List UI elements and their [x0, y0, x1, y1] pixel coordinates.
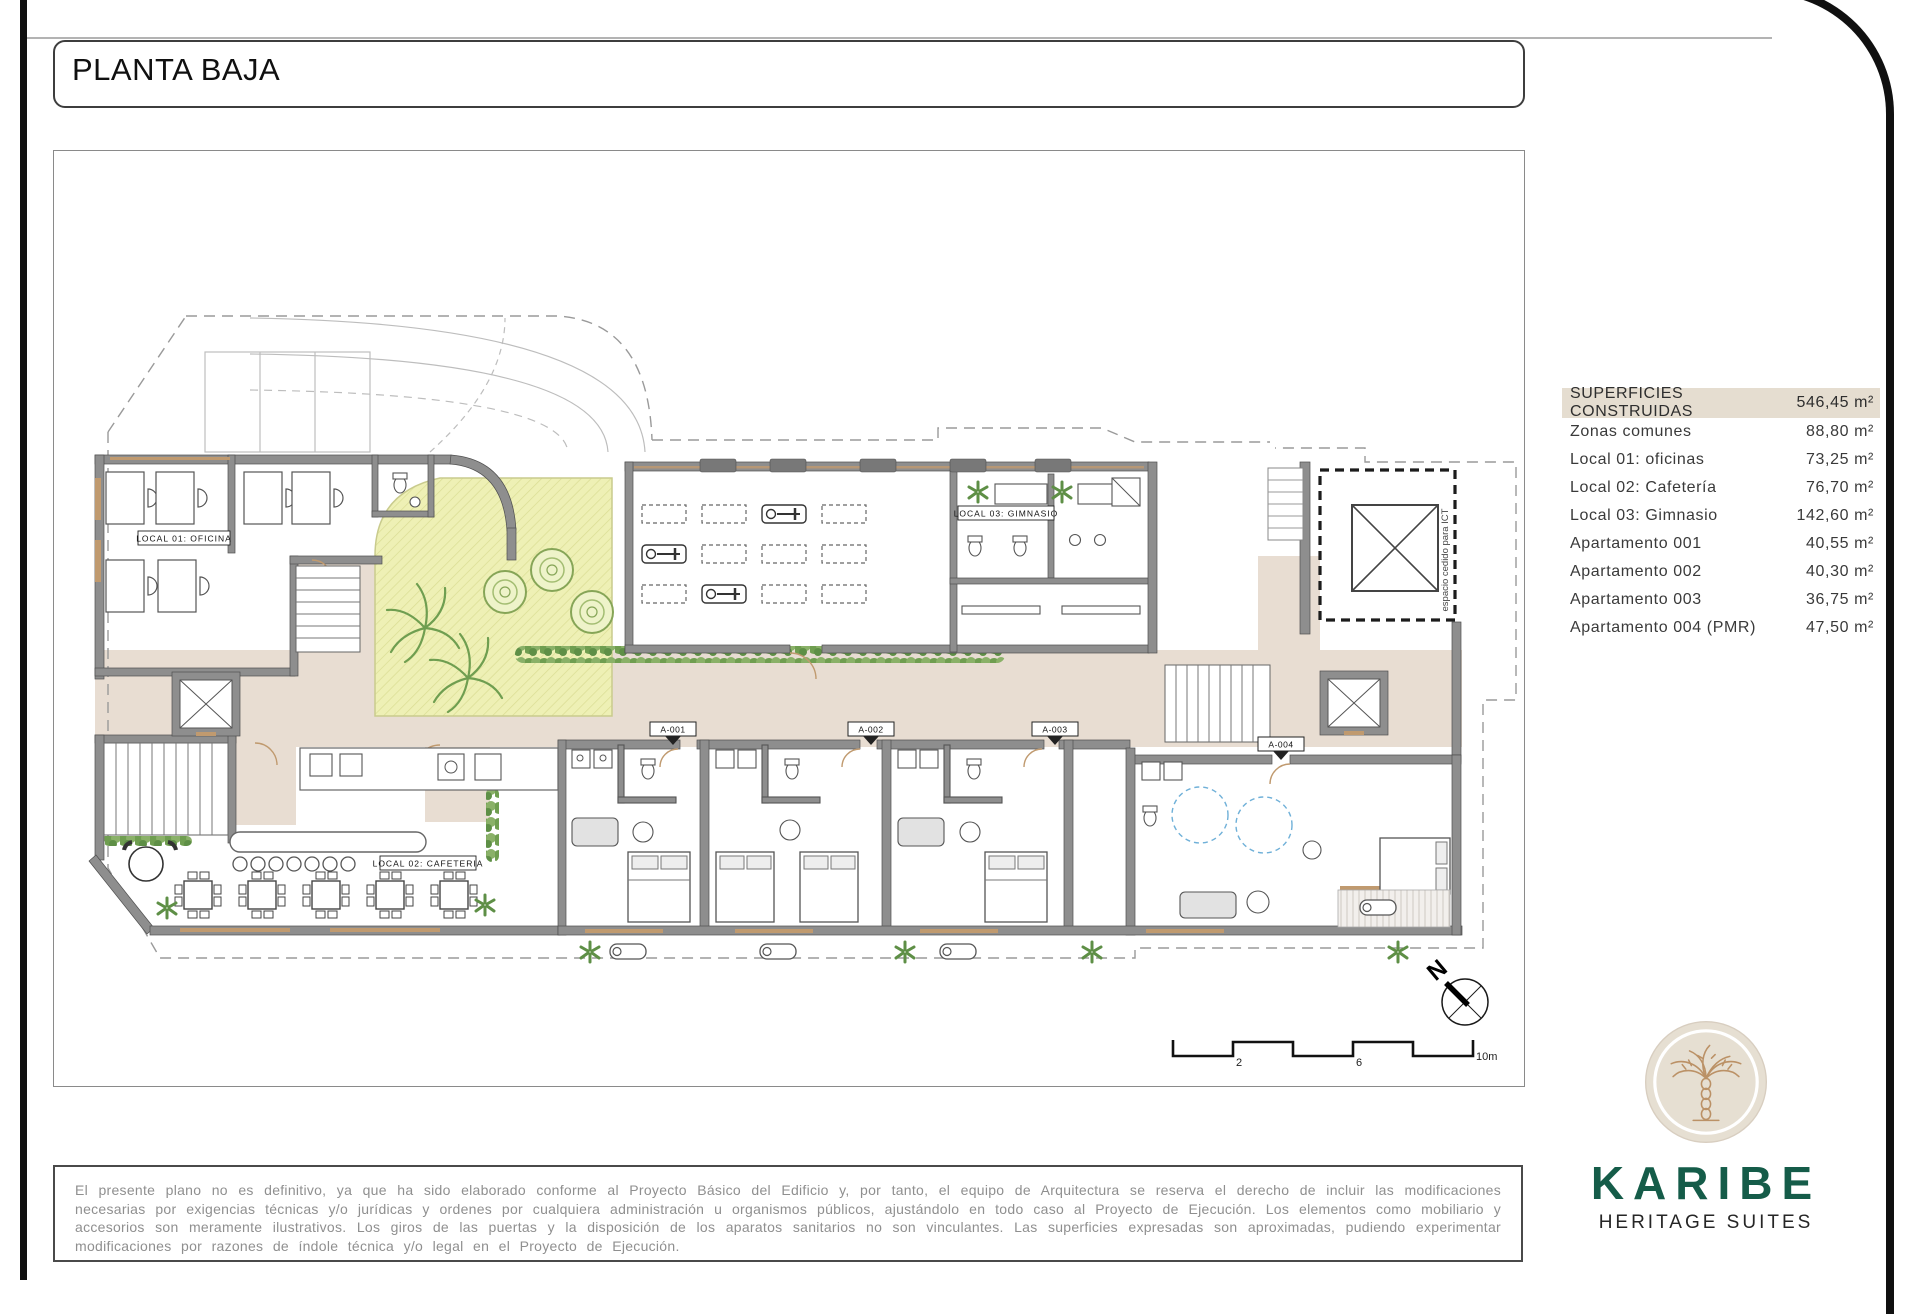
row-label: Local 03: Gimnasio [1570, 507, 1778, 525]
row-label: Apartamento 001 [1570, 535, 1778, 553]
areas-header-value: 546,45 m² [1778, 394, 1874, 412]
row-label: Apartamento 003 [1570, 591, 1778, 609]
local02-label: LOCAL 02: CAFETERIA [373, 859, 484, 869]
row-value: 88,80 m² [1778, 423, 1874, 441]
row-label: Apartamento 004 (PMR) [1570, 619, 1778, 637]
north-compass: N [1422, 954, 1488, 1025]
local03-label: LOCAL 03: GIMNASIO [954, 509, 1059, 519]
brand-name: KARIBE [1556, 1156, 1856, 1210]
row-value: 36,75 m² [1778, 591, 1874, 609]
page-title: PLANTA BAJA [72, 52, 280, 88]
table-row: Apartamento 004 (PMR) 47,50 m² [1562, 614, 1880, 642]
terraces [581, 942, 1407, 962]
table-row: Apartamento 002 40,30 m² [1562, 558, 1880, 586]
apartment-001 [572, 745, 690, 922]
row-label: Apartamento 002 [1570, 563, 1778, 581]
table-row: Apartamento 003 36,75 m² [1562, 586, 1880, 614]
page-left-border [20, 0, 27, 1280]
plan-sheet: { "page": { "title": "PLANTA BAJA" }, "p… [0, 0, 1920, 1280]
areas-header-label: SUPERFICIES CONSTRUIDAS [1570, 385, 1778, 421]
brand-tagline: HERITAGE SUITES [1556, 1212, 1856, 1234]
apt-tag-3: A-003 [1042, 725, 1067, 735]
row-value: 73,25 m² [1778, 451, 1874, 469]
scale-6: 6 [1356, 1057, 1362, 1069]
page-top-rule [27, 37, 1772, 39]
apt-tag-4: A-004 [1268, 740, 1293, 750]
apartment-004-pmr [1142, 762, 1450, 927]
row-label: Local 02: Cafetería [1570, 479, 1778, 497]
scale-bar: 2 6 10m [1173, 1040, 1497, 1069]
apartment-002 [716, 745, 860, 922]
row-value: 40,55 m² [1778, 535, 1874, 553]
row-label: Zonas comunes [1570, 423, 1778, 441]
floor-plan-frame: LOCAL 01: OFICINA LOCAL 03: GIMNASIO [53, 150, 1525, 1087]
areas-table: SUPERFICIES CONSTRUIDAS 546,45 m² Zonas … [1562, 388, 1880, 642]
local01-label: LOCAL 01: OFICINA [136, 534, 232, 544]
table-row: Local 03: Gimnasio 142,60 m² [1562, 502, 1880, 530]
ict-label: espacio cedido para ICT [1440, 508, 1451, 611]
driveway-ramp [205, 318, 645, 452]
apt-tag-2: A-002 [858, 725, 883, 735]
areas-table-header: SUPERFICIES CONSTRUIDAS 546,45 m² [1562, 388, 1880, 418]
scale-2: 2 [1236, 1057, 1242, 1069]
table-row: Apartamento 001 40,55 m² [1562, 530, 1880, 558]
disclaimer-text: El presente plano no es definitivo, ya q… [75, 1181, 1501, 1255]
disclaimer-box: El presente plano no es definitivo, ya q… [53, 1165, 1523, 1262]
apartment-003 [898, 745, 1047, 922]
row-value: 142,60 m² [1778, 507, 1874, 525]
row-value: 40,30 m² [1778, 563, 1874, 581]
scale-10m: 10m [1476, 1051, 1497, 1063]
apt-tag-1: A-001 [660, 725, 685, 735]
row-label: Local 01: oficinas [1570, 451, 1778, 469]
floor-plan-drawing: LOCAL 01: OFICINA LOCAL 03: GIMNASIO [54, 151, 1524, 1083]
brand-logo: KARIBE HERITAGE SUITES [1556, 1018, 1856, 1234]
table-row: Local 02: Cafetería 76,70 m² [1562, 474, 1880, 502]
palm-tree-icon [1642, 1018, 1770, 1146]
table-row: Zonas comunes 88,80 m² [1562, 418, 1880, 446]
row-value: 47,50 m² [1778, 619, 1874, 637]
table-row: Local 01: oficinas 73,25 m² [1562, 446, 1880, 474]
row-value: 76,70 m² [1778, 479, 1874, 497]
